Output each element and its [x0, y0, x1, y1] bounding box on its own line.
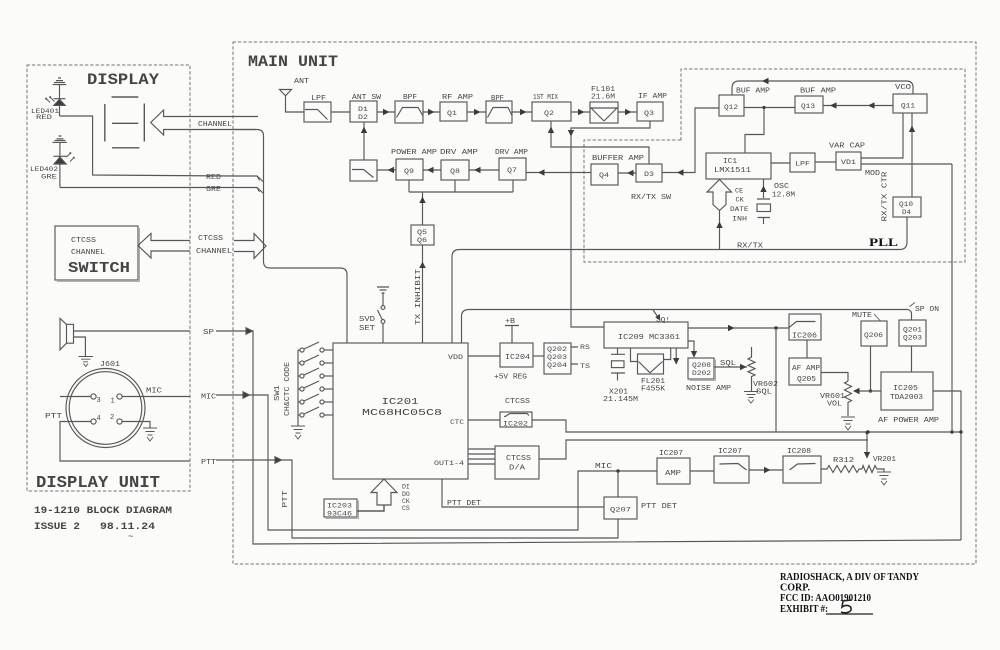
svg-text:PTT DET: PTT DET: [641, 503, 678, 511]
svg-text:MIC: MIC: [595, 463, 613, 471]
svg-text:NOISE AMP: NOISE AMP: [686, 385, 731, 393]
svg-text:DI: DI: [402, 484, 410, 491]
svg-text:1: 1: [111, 398, 115, 406]
svg-text:EXHIBIT #:: EXHIBIT #:: [780, 603, 828, 615]
svg-text:CTCSS: CTCSS: [506, 455, 531, 463]
svg-text:VAR CAP: VAR CAP: [829, 143, 865, 151]
svg-text:Q206: Q206: [864, 332, 883, 340]
svg-text:Q5: Q5: [417, 229, 427, 236]
svg-text:MC68HC05C8: MC68HC05C8: [362, 408, 442, 418]
svg-text:Q201: Q201: [903, 327, 922, 334]
svg-text:MAIN UNIT: MAIN UNIT: [248, 53, 338, 71]
svg-text:SW1: SW1: [274, 385, 282, 401]
svg-text:IF AMP: IF AMP: [638, 93, 667, 101]
svg-text:IC203: IC203: [327, 503, 352, 510]
svg-text:SP ON: SP ON: [915, 306, 939, 314]
svg-text:ANT SW: ANT SW: [352, 94, 382, 102]
svg-text:3: 3: [97, 397, 101, 405]
svg-text:DO: DO: [402, 491, 410, 498]
svg-text:CTCSS: CTCSS: [505, 398, 530, 406]
svg-text:F455K: F455K: [641, 386, 666, 394]
svg-text:D2: D2: [358, 114, 368, 121]
svg-text:DRV AMP: DRV AMP: [440, 149, 478, 157]
svg-text:SQ!: SQ!: [656, 317, 670, 325]
svg-text:2: 2: [110, 414, 114, 422]
svg-text:CS: CS: [402, 505, 410, 512]
svg-text:Q6: Q6: [417, 237, 427, 244]
svg-text:AF AMP: AF AMP: [792, 365, 820, 373]
svg-text:IC202: IC202: [503, 421, 528, 429]
svg-text:Q9: Q9: [404, 168, 414, 176]
svg-text:BPF: BPF: [491, 95, 504, 103]
svg-text:VCO: VCO: [895, 84, 911, 92]
svg-text:Q1: Q1: [447, 110, 457, 118]
svg-text:IC209 MC3361: IC209 MC3361: [618, 334, 681, 342]
svg-text:D/A: D/A: [509, 465, 526, 473]
svg-text:VOL: VOL: [827, 401, 842, 409]
svg-text:ISSUE 2: ISSUE 2: [34, 521, 80, 533]
svg-text:Q203: Q203: [903, 335, 922, 342]
svg-text:4: 4: [97, 415, 101, 423]
svg-text:IC206: IC206: [792, 333, 817, 341]
svg-text:Q4: Q4: [599, 172, 609, 180]
svg-text:SP: SP: [203, 329, 214, 337]
svg-text:RX/TX CTR: RX/TX CTR: [882, 170, 890, 221]
svg-text:POWER AMP: POWER AMP: [391, 149, 437, 157]
svg-text:Q12: Q12: [724, 104, 738, 112]
svg-text:CE: CE: [735, 188, 743, 196]
svg-text:Q205: Q205: [797, 376, 816, 384]
svg-text:TX INHIBIT: TX INHIBIT: [415, 269, 423, 325]
svg-text:+5V REG: +5V REG: [494, 374, 527, 382]
svg-text:Q203: Q203: [547, 354, 567, 361]
svg-text:SQL: SQL: [720, 360, 736, 368]
svg-text:RS: RS: [580, 344, 590, 352]
svg-text:DISPLAY UNIT: DISPLAY UNIT: [36, 473, 160, 492]
svg-text:21.6M: 21.6M: [591, 94, 615, 102]
svg-text:MUTE: MUTE: [852, 312, 872, 320]
svg-text:D202: D202: [692, 370, 711, 377]
svg-text:D4: D4: [902, 209, 911, 216]
svg-text:CTCSS: CTCSS: [71, 237, 96, 245]
svg-text:21.145M: 21.145M: [603, 396, 638, 404]
svg-text:IC201: IC201: [382, 397, 419, 407]
svg-text:CTCSS: CTCSS: [198, 235, 223, 243]
svg-text:PLL: PLL: [869, 237, 898, 249]
svg-text:CK: CK: [736, 197, 745, 205]
svg-text:IC205: IC205: [893, 385, 918, 393]
svg-text:MIC: MIC: [201, 394, 217, 402]
svg-text:Q3: Q3: [644, 110, 654, 118]
svg-text:BUF AMP: BUF AMP: [736, 88, 770, 96]
svg-text:93C46: 93C46: [327, 511, 352, 518]
svg-text:INH: INH: [732, 216, 747, 224]
svg-text:RX/TX SW: RX/TX SW: [631, 194, 672, 202]
svg-text:SET: SET: [359, 325, 375, 333]
svg-text:CHANNEL: CHANNEL: [71, 249, 105, 257]
svg-text:Q10: Q10: [899, 201, 913, 208]
svg-text:BUF AMP: BUF AMP: [800, 88, 836, 96]
svg-text:RF AMP: RF AMP: [442, 94, 473, 102]
svg-text:AMP: AMP: [665, 470, 681, 478]
svg-text:Q207: Q207: [610, 507, 631, 515]
svg-text:VDD: VDD: [448, 354, 463, 362]
svg-text:19-1210 BLOCK DIAGRAM: 19-1210 BLOCK DIAGRAM: [34, 505, 172, 517]
svg-text:Q13: Q13: [801, 103, 815, 111]
svg-text:RX/TX: RX/TX: [737, 243, 764, 251]
svg-text:BPF: BPF: [403, 94, 417, 102]
svg-text:Q8: Q8: [450, 168, 460, 176]
svg-text:CH&CTC CODE: CH&CTC CODE: [284, 362, 292, 416]
svg-text:MIC: MIC: [146, 388, 162, 396]
svg-text:VR201: VR201: [873, 456, 896, 464]
svg-text:12.8M: 12.8M: [772, 192, 795, 200]
svg-text:1ST MIX: 1ST MIX: [533, 94, 559, 102]
svg-text:SQL: SQL: [756, 389, 772, 397]
svg-text:TS: TS: [580, 363, 590, 371]
svg-text:VD1: VD1: [841, 159, 856, 167]
svg-text:ANT: ANT: [294, 78, 310, 86]
svg-text:D3: D3: [644, 171, 654, 179]
svg-text:OSC: OSC: [774, 183, 790, 191]
svg-text:CHANNEL: CHANNEL: [198, 121, 232, 129]
svg-text:GRE: GRE: [41, 174, 57, 182]
svg-text:J601: J601: [100, 361, 120, 369]
svg-text:CTC: CTC: [450, 419, 464, 427]
svg-text:Q2: Q2: [544, 110, 554, 118]
svg-text:Q204: Q204: [547, 362, 567, 369]
svg-text:MOD: MOD: [865, 170, 880, 178]
svg-text:IC207: IC207: [718, 448, 742, 456]
svg-text:LPF: LPF: [311, 95, 326, 103]
svg-text:Q7: Q7: [507, 167, 517, 175]
svg-text:BUFFER AMP: BUFFER AMP: [592, 155, 644, 163]
svg-text:R312: R312: [833, 457, 854, 465]
svg-text:LPF: LPF: [795, 161, 810, 169]
svg-text:CK: CK: [402, 498, 410, 505]
svg-text:IC208: IC208: [787, 448, 811, 456]
svg-text:Q202: Q202: [547, 346, 567, 353]
svg-text:PTT: PTT: [282, 491, 290, 508]
svg-text:OUT1-4: OUT1-4: [434, 460, 464, 468]
svg-text:Q208: Q208: [692, 362, 711, 369]
svg-text:IC204: IC204: [505, 354, 530, 362]
svg-text:AF POWER AMP: AF POWER AMP: [878, 417, 940, 425]
svg-text:IC207: IC207: [659, 450, 683, 458]
svg-text:~: ~: [128, 532, 133, 542]
svg-text:GRE: GRE: [206, 186, 221, 194]
svg-text:SVD: SVD: [359, 316, 375, 324]
svg-text:Q11: Q11: [901, 103, 915, 111]
svg-text:DATE: DATE: [730, 206, 749, 214]
svg-text:PTT: PTT: [45, 413, 62, 421]
svg-text:LMX1511: LMX1511: [714, 167, 751, 175]
svg-text:CHANNEL: CHANNEL: [196, 248, 232, 256]
svg-text:TDA2003: TDA2003: [890, 394, 923, 402]
svg-text:+B: +B: [505, 318, 515, 326]
svg-text:RED: RED: [36, 114, 52, 122]
svg-text:PTT DET: PTT DET: [447, 500, 482, 508]
svg-text:DISPLAY: DISPLAY: [87, 71, 159, 89]
svg-text:DRV AMP: DRV AMP: [495, 149, 528, 157]
svg-text:SWITCH: SWITCH: [68, 261, 130, 277]
svg-text:PTT: PTT: [201, 459, 217, 467]
svg-text:IC1: IC1: [723, 158, 737, 166]
svg-text:RED: RED: [206, 174, 221, 182]
svg-text:D1: D1: [358, 106, 368, 113]
